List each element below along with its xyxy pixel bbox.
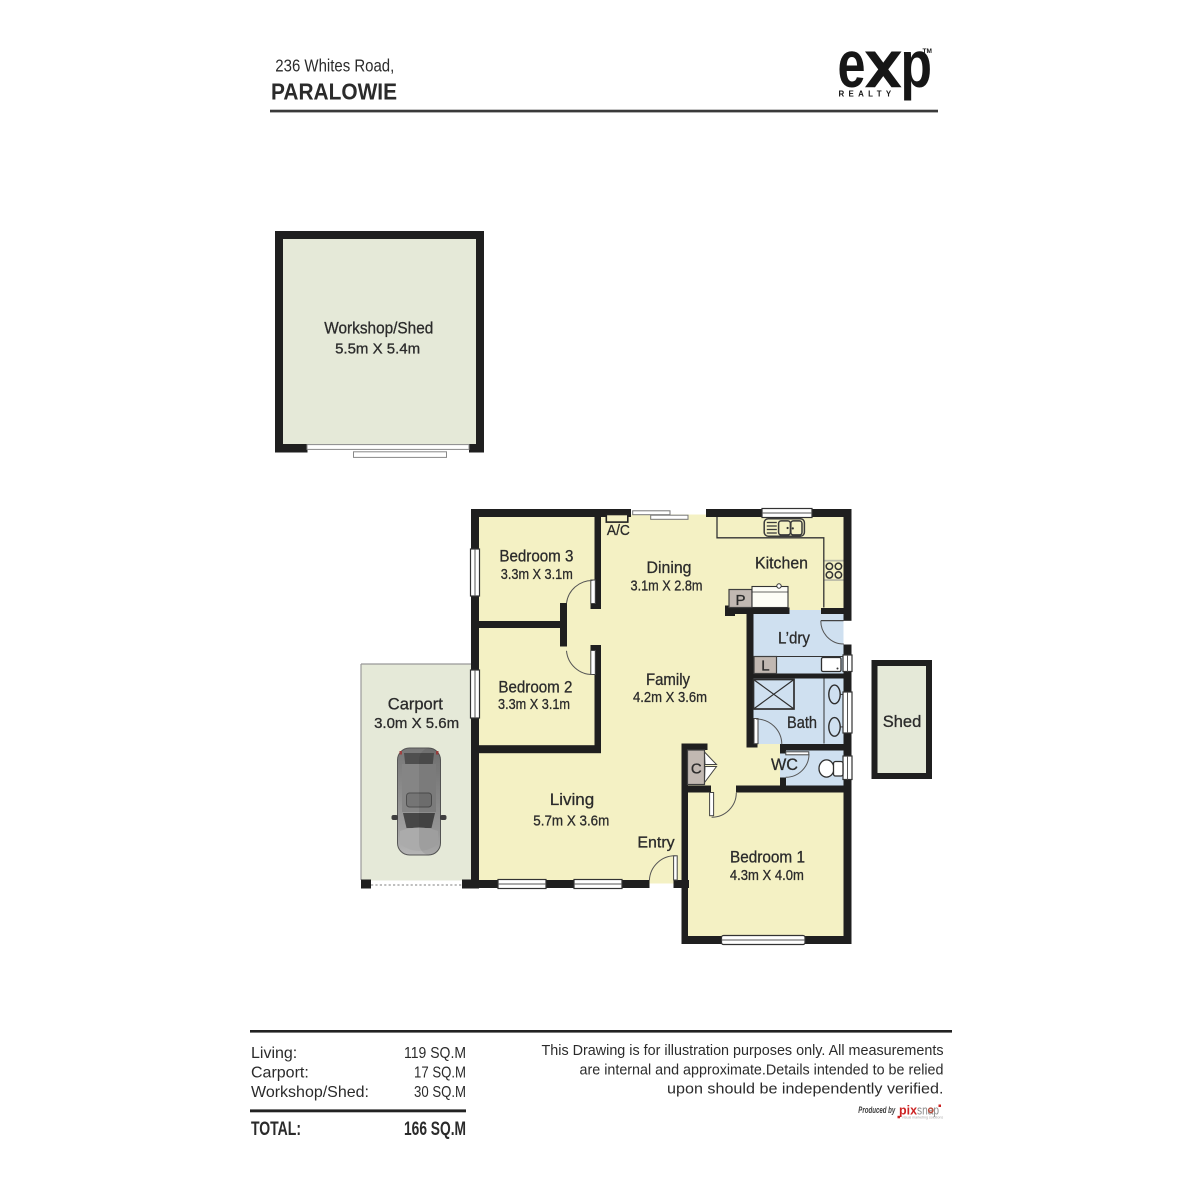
svg-text:upon should be independently v: upon should be independently verified. — [667, 1081, 944, 1098]
svg-text:3.3m X 3.1m: 3.3m X 3.1m — [498, 696, 570, 713]
svg-text:119 SQ.M: 119 SQ.M — [404, 1045, 466, 1062]
svg-text:4.2m X 3.6m: 4.2m X 3.6m — [633, 689, 707, 706]
svg-text:p: p — [901, 27, 933, 101]
svg-text:C: C — [691, 761, 702, 778]
svg-text:Carport: Carport — [388, 696, 443, 714]
svg-text:Living:: Living: — [251, 1045, 297, 1062]
svg-text:Workshop/Shed: Workshop/Shed — [324, 320, 433, 338]
svg-text:WC: WC — [771, 755, 798, 774]
svg-text:are internal and approximate.D: are internal and approximate.Details int… — [580, 1061, 944, 1078]
svg-text:TOTAL:: TOTAL: — [251, 1119, 301, 1140]
svg-text:Produced by: Produced by — [858, 1105, 895, 1116]
svg-text:166 SQ.M: 166 SQ.M — [404, 1119, 466, 1140]
svg-text:Shed: Shed — [883, 713, 922, 731]
svg-text:Family: Family — [646, 670, 690, 689]
svg-text:Dining: Dining — [647, 558, 692, 577]
svg-text:4.3m X 4.0m: 4.3m X 4.0m — [730, 867, 804, 884]
svg-text:TM: TM — [923, 48, 932, 55]
svg-text:Living: Living — [550, 790, 594, 809]
svg-text:L: L — [761, 658, 769, 675]
svg-text:17 SQ.M: 17 SQ.M — [414, 1064, 466, 1081]
svg-text:REALTY: REALTY — [839, 89, 896, 99]
svg-text:3.0m X 5.6m: 3.0m X 5.6m — [374, 715, 459, 732]
svg-text:5.7m X 3.6m: 5.7m X 3.6m — [533, 812, 609, 829]
svg-text:visual marketing solutions: visual marketing solutions — [902, 1115, 943, 1119]
svg-text:5.5m X 5.4m: 5.5m X 5.4m — [335, 341, 420, 358]
svg-text:3.3m X 3.1m: 3.3m X 3.1m — [501, 566, 573, 583]
svg-text:30 SQ.M: 30 SQ.M — [414, 1084, 466, 1101]
svg-text:Kitchen: Kitchen — [755, 554, 808, 573]
svg-text:This Drawing is for illustrati: This Drawing is for illustration purpose… — [542, 1042, 944, 1059]
svg-text:Bedroom 2: Bedroom 2 — [498, 679, 572, 697]
svg-text:A/C: A/C — [607, 522, 630, 539]
svg-text:Bath: Bath — [787, 713, 817, 732]
svg-text:3.1m X 2.8m: 3.1m X 2.8m — [631, 578, 703, 595]
svg-text:Bedroom 1: Bedroom 1 — [730, 849, 805, 867]
svg-text:L’dry: L’dry — [778, 630, 811, 648]
svg-text:PARALOWIE: PARALOWIE — [271, 78, 397, 104]
svg-text:Bedroom 3: Bedroom 3 — [499, 548, 573, 566]
svg-text:Workshop/Shed:: Workshop/Shed: — [251, 1084, 369, 1101]
svg-text:236 Whites Road,: 236 Whites Road, — [275, 56, 394, 76]
svg-text:Carport:: Carport: — [251, 1064, 309, 1081]
svg-text:Entry: Entry — [637, 835, 674, 852]
svg-text:P: P — [735, 592, 745, 609]
